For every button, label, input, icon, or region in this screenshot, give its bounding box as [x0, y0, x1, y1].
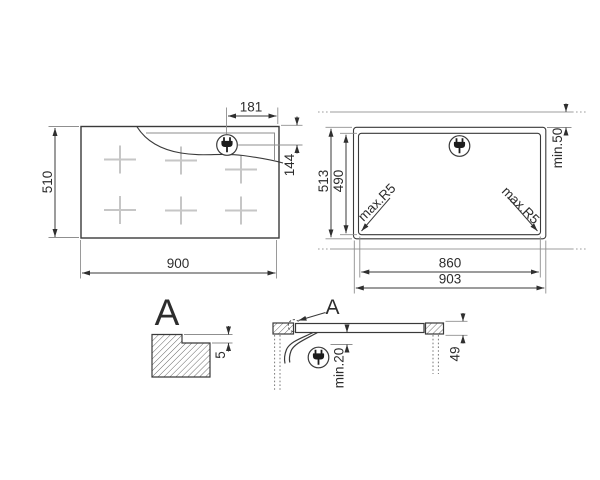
installation-drawing-page: 510 900 181 144 513 490: [0, 0, 600, 480]
ledge-depth-label: 5: [213, 351, 228, 359]
power-plug-icon: [308, 347, 329, 368]
hob-top-view: 510 900 181 144: [40, 100, 303, 279]
worktop-cutout-view: 513 490 min.50 max.R5 max.R5 860 903: [316, 104, 588, 294]
cutout-inner-width-label: 860: [439, 256, 462, 271]
top-width-label: 900: [167, 256, 190, 271]
edge-detail-view: A 5: [152, 292, 233, 377]
hob-inner-frame-edge: [146, 133, 275, 160]
ext-lines-5: [184, 335, 233, 344]
rear-clearance-label: min.50: [550, 128, 565, 169]
section-a-letter: A: [325, 296, 339, 319]
plug-offset-top-label: 144: [282, 153, 297, 176]
ext-lines-144: [238, 125, 302, 145]
plug-offset-right-label: 181: [240, 100, 263, 115]
worktop-rebate-section: [152, 335, 210, 378]
cross-section-view: A min.20 49: [273, 296, 468, 391]
ext-lines-49: [446, 321, 468, 335]
installation-drawing: 510 900 181 144 513 490: [0, 0, 600, 480]
worktop-hatch-right: [426, 323, 444, 334]
top-height-label: 510: [40, 171, 55, 194]
cooking-zone-cross: [104, 196, 136, 224]
corner-radius-left-label: max.R5: [355, 181, 398, 224]
corner-radius-right-label: max.R5: [499, 184, 542, 227]
cooking-zone-cross: [225, 156, 257, 184]
cabinet-side-lines: [275, 335, 439, 391]
detail-a-letter: A: [155, 292, 180, 333]
cooking-zone-cross: [165, 197, 197, 225]
cooking-zone-cross: [225, 197, 257, 225]
cutout-inner-height-label: 490: [331, 170, 346, 193]
cutout-outer-height-label: 513: [316, 170, 331, 193]
build-in-depth-label: 49: [448, 346, 463, 361]
detail-a-callout-arrow: [299, 313, 326, 321]
bottom-clearance-label: min.20: [332, 348, 347, 389]
cutout-outer-width-label: 903: [439, 272, 462, 287]
cooking-zone-cross: [104, 146, 136, 174]
worktop-hatch-left: [273, 323, 294, 334]
power-plug-icon: [449, 136, 470, 157]
hob-section-slab: [296, 324, 425, 333]
power-plug-icon: [217, 135, 238, 156]
